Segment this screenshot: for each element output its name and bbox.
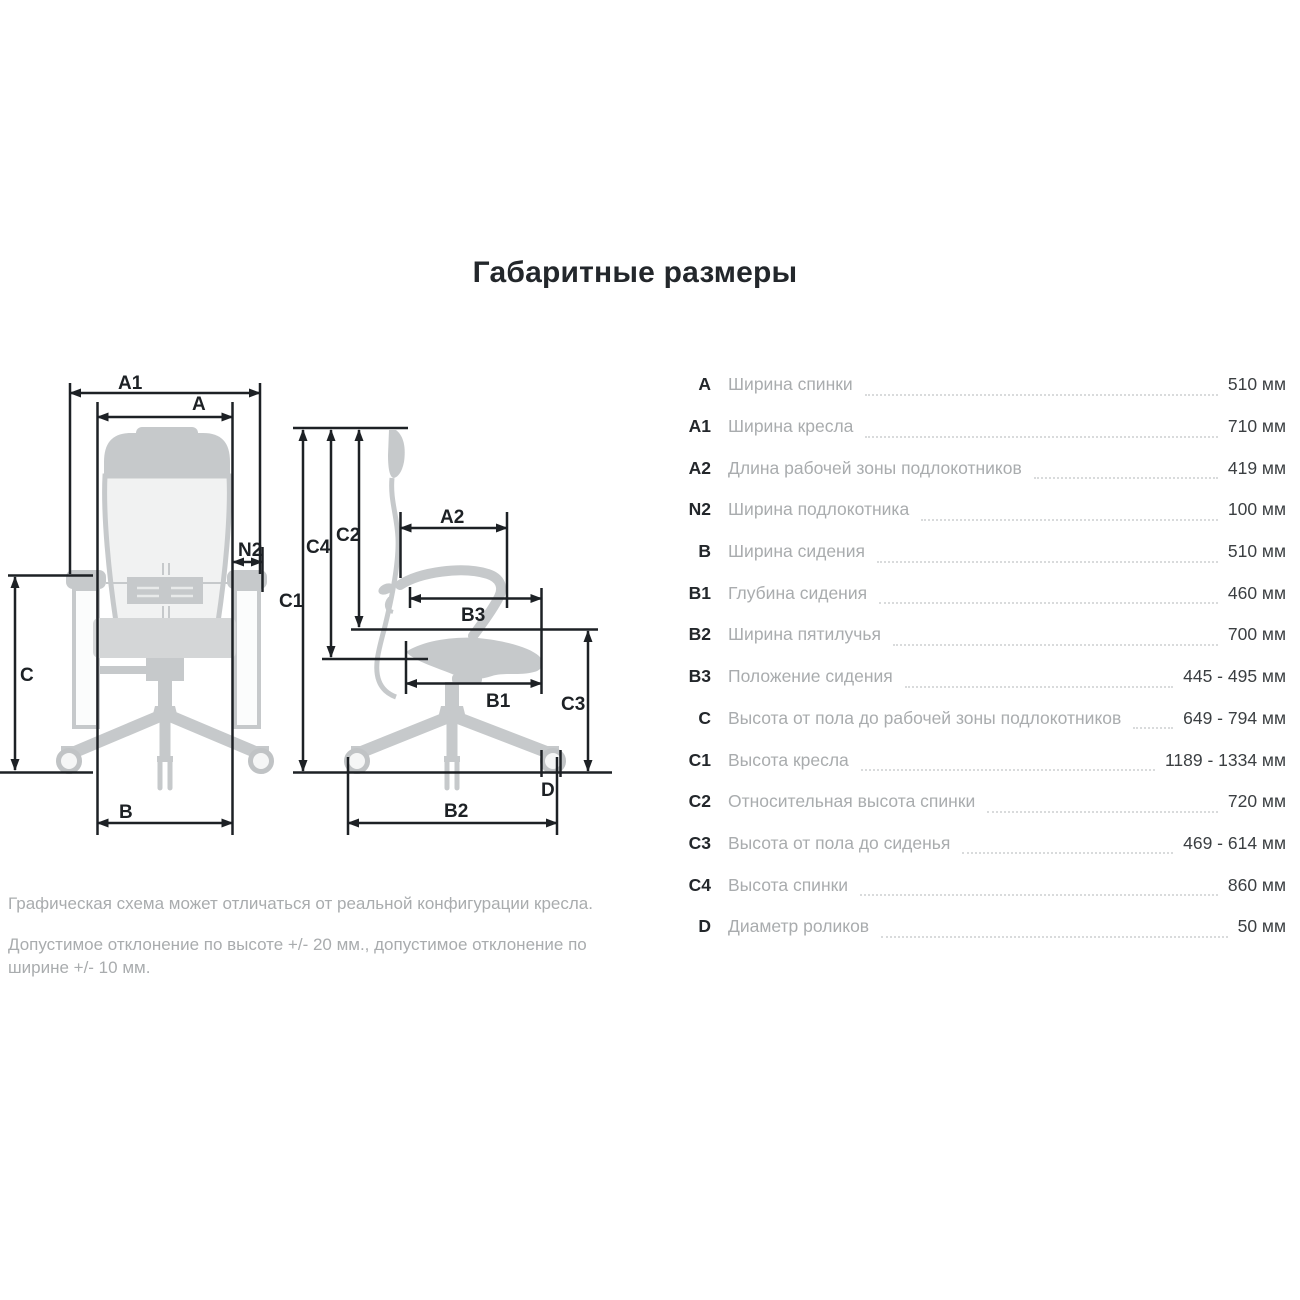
table-row: B Ширина сидения 510 мм — [680, 531, 1286, 573]
dim-label-a: A — [192, 394, 206, 415]
table-row: N2 Ширина подлокотника 100 мм — [680, 489, 1286, 531]
leader-dots — [860, 882, 1218, 896]
footnote-tolerance: Допустимое отклонение по высоте +/- 20 м… — [8, 934, 600, 979]
table-row: B2 Ширина пятилучья 700 мм — [680, 614, 1286, 656]
dimension-value: 100 мм — [1228, 499, 1286, 520]
dimension-label: Ширина кресла — [728, 416, 853, 437]
dimension-label: Высота спинки — [728, 875, 848, 896]
dimension-code: A — [680, 374, 711, 395]
dimension-label: Ширина пятилучья — [728, 624, 881, 645]
dimension-value: 510 мм — [1228, 374, 1286, 395]
front-mechanism — [146, 658, 184, 681]
footnote-scheme-disclaimer: Графическая схема может отличаться от ре… — [8, 893, 600, 915]
leader-dots — [1133, 715, 1173, 729]
dimension-spec-table: A Ширина спинки 510 мм A1 Ширина кресла … — [680, 364, 1286, 948]
table-row: C4 Высота спинки 860 мм — [680, 864, 1286, 906]
table-row: C3 Высота от пола до сиденья 469 - 614 м… — [680, 823, 1286, 865]
side-gas-lift — [445, 682, 459, 708]
dimension-label: Диаметр роликов — [728, 916, 869, 937]
dimension-value: 700 мм — [1228, 624, 1286, 645]
leader-dots — [921, 507, 1218, 521]
table-row: B1 Глубина сидения 460 мм — [680, 572, 1286, 614]
dimension-label: Ширина спинки — [728, 374, 853, 395]
dim-label-c2: C2 — [336, 525, 360, 546]
leader-dots — [861, 757, 1155, 771]
dimension-code: A1 — [680, 416, 711, 437]
leader-dots — [962, 840, 1173, 854]
dimension-value: 649 - 794 мм — [1183, 708, 1286, 729]
table-row: C2 Относительная высота спинки 720 мм — [680, 781, 1286, 823]
dim-label-c: C — [20, 665, 34, 686]
dimension-label: Положение сидения — [728, 666, 893, 687]
chair-side-view — [347, 430, 564, 788]
dimension-value: 710 мм — [1228, 416, 1286, 437]
table-row: C Высота от пола до рабочей зоны подлоко… — [680, 698, 1286, 740]
dimension-value: 460 мм — [1228, 583, 1286, 604]
leader-dots — [865, 382, 1218, 396]
dimension-label: Глубина сидения — [728, 583, 867, 604]
page-title: Габаритные размеры — [0, 256, 1270, 290]
leader-dots — [881, 924, 1228, 938]
front-headrest-band — [104, 433, 230, 476]
dim-label-c1: C1 — [279, 591, 304, 612]
front-armrest-pad-left — [66, 570, 106, 589]
dimension-label: Длина рабочей зоны подлокотников — [728, 458, 1022, 479]
dimension-code: B2 — [680, 624, 711, 645]
table-row: A2 Длина рабочей зоны подлокотников 419 … — [680, 447, 1286, 489]
dimension-value: 510 мм — [1228, 541, 1286, 562]
table-row: A Ширина спинки 510 мм — [680, 364, 1286, 406]
leader-dots — [893, 632, 1218, 646]
dim-label-a2: A2 — [440, 507, 464, 528]
front-caster-left — [59, 751, 80, 772]
leader-dots — [865, 424, 1217, 438]
dimension-value: 445 - 495 мм — [1183, 666, 1286, 687]
front-lumbar-support — [127, 577, 203, 604]
table-row: B3 Положение сидения 445 - 495 мм — [680, 656, 1286, 698]
chair-front-view — [59, 427, 272, 788]
dim-label-a1: A1 — [118, 373, 143, 394]
dimension-label: Высота от пола до рабочей зоны подлокотн… — [728, 708, 1121, 729]
dimension-code: C3 — [680, 833, 711, 854]
dim-label-b1: B1 — [486, 691, 511, 712]
dim-label-b3: B3 — [461, 605, 485, 626]
front-seat — [93, 618, 236, 658]
footnotes: Графическая схема может отличаться от ре… — [8, 893, 600, 979]
side-fork-prongs — [447, 760, 457, 788]
side-leg-left — [359, 716, 451, 753]
dimension-code: C — [680, 708, 711, 729]
dimension-code: B3 — [680, 666, 711, 687]
dimension-label: Высота от пола до сиденья — [728, 833, 950, 854]
front-fork-prongs — [160, 760, 170, 788]
dim-label-b: B — [119, 802, 133, 823]
front-armrest-post-right — [235, 589, 259, 727]
dimension-value: 469 - 614 мм — [1183, 833, 1286, 854]
dimension-value: 419 мм — [1228, 458, 1286, 479]
page-background: Габаритные размеры — [0, 0, 1300, 1300]
side-caster-left — [347, 751, 368, 772]
leader-dots — [905, 674, 1173, 688]
dimension-code: C2 — [680, 791, 711, 812]
leader-dots — [987, 799, 1218, 813]
side-leg-right — [453, 716, 549, 753]
dim-label-b2: B2 — [444, 801, 468, 822]
front-armrest-post-left — [74, 589, 98, 727]
dim-label-n2: N2 — [238, 540, 262, 561]
dimension-value: 860 мм — [1228, 875, 1286, 896]
dimension-value: 50 мм — [1238, 916, 1286, 937]
dimension-code: N2 — [680, 499, 711, 520]
dimension-code: A2 — [680, 458, 711, 479]
dimension-code: B — [680, 541, 711, 562]
dimension-code: C1 — [680, 750, 711, 771]
table-row: A1 Ширина кресла 710 мм — [680, 406, 1286, 448]
leader-dots — [877, 549, 1218, 563]
dimension-code: D — [680, 916, 711, 937]
table-row: C1 Высота кресла 1189 - 1334 мм — [680, 739, 1286, 781]
dimension-value: 720 мм — [1228, 791, 1286, 812]
side-headrest — [388, 430, 405, 478]
side-armrest — [400, 570, 501, 636]
dim-label-d: D — [541, 780, 555, 801]
dimension-code: C4 — [680, 875, 711, 896]
front-lever — [100, 666, 146, 674]
dimension-label: Высота кресла — [728, 750, 849, 771]
front-caster-right — [251, 751, 272, 772]
leader-dots — [1034, 465, 1218, 479]
chair-dimension-diagram: A1 A N2 C B — [0, 355, 620, 855]
dim-label-c4: C4 — [306, 537, 331, 558]
dimension-label: Ширина подлокотника — [728, 499, 909, 520]
dim-label-c3: C3 — [561, 694, 585, 715]
front-gas-lift — [158, 681, 172, 708]
leader-dots — [879, 590, 1218, 604]
dimension-value: 1189 - 1334 мм — [1165, 750, 1286, 771]
dimension-code: B1 — [680, 583, 711, 604]
dimension-label: Относительная высота спинки — [728, 791, 975, 812]
dimension-label: Ширина сидения — [728, 541, 865, 562]
table-row: D Диаметр роликов 50 мм — [680, 906, 1286, 948]
